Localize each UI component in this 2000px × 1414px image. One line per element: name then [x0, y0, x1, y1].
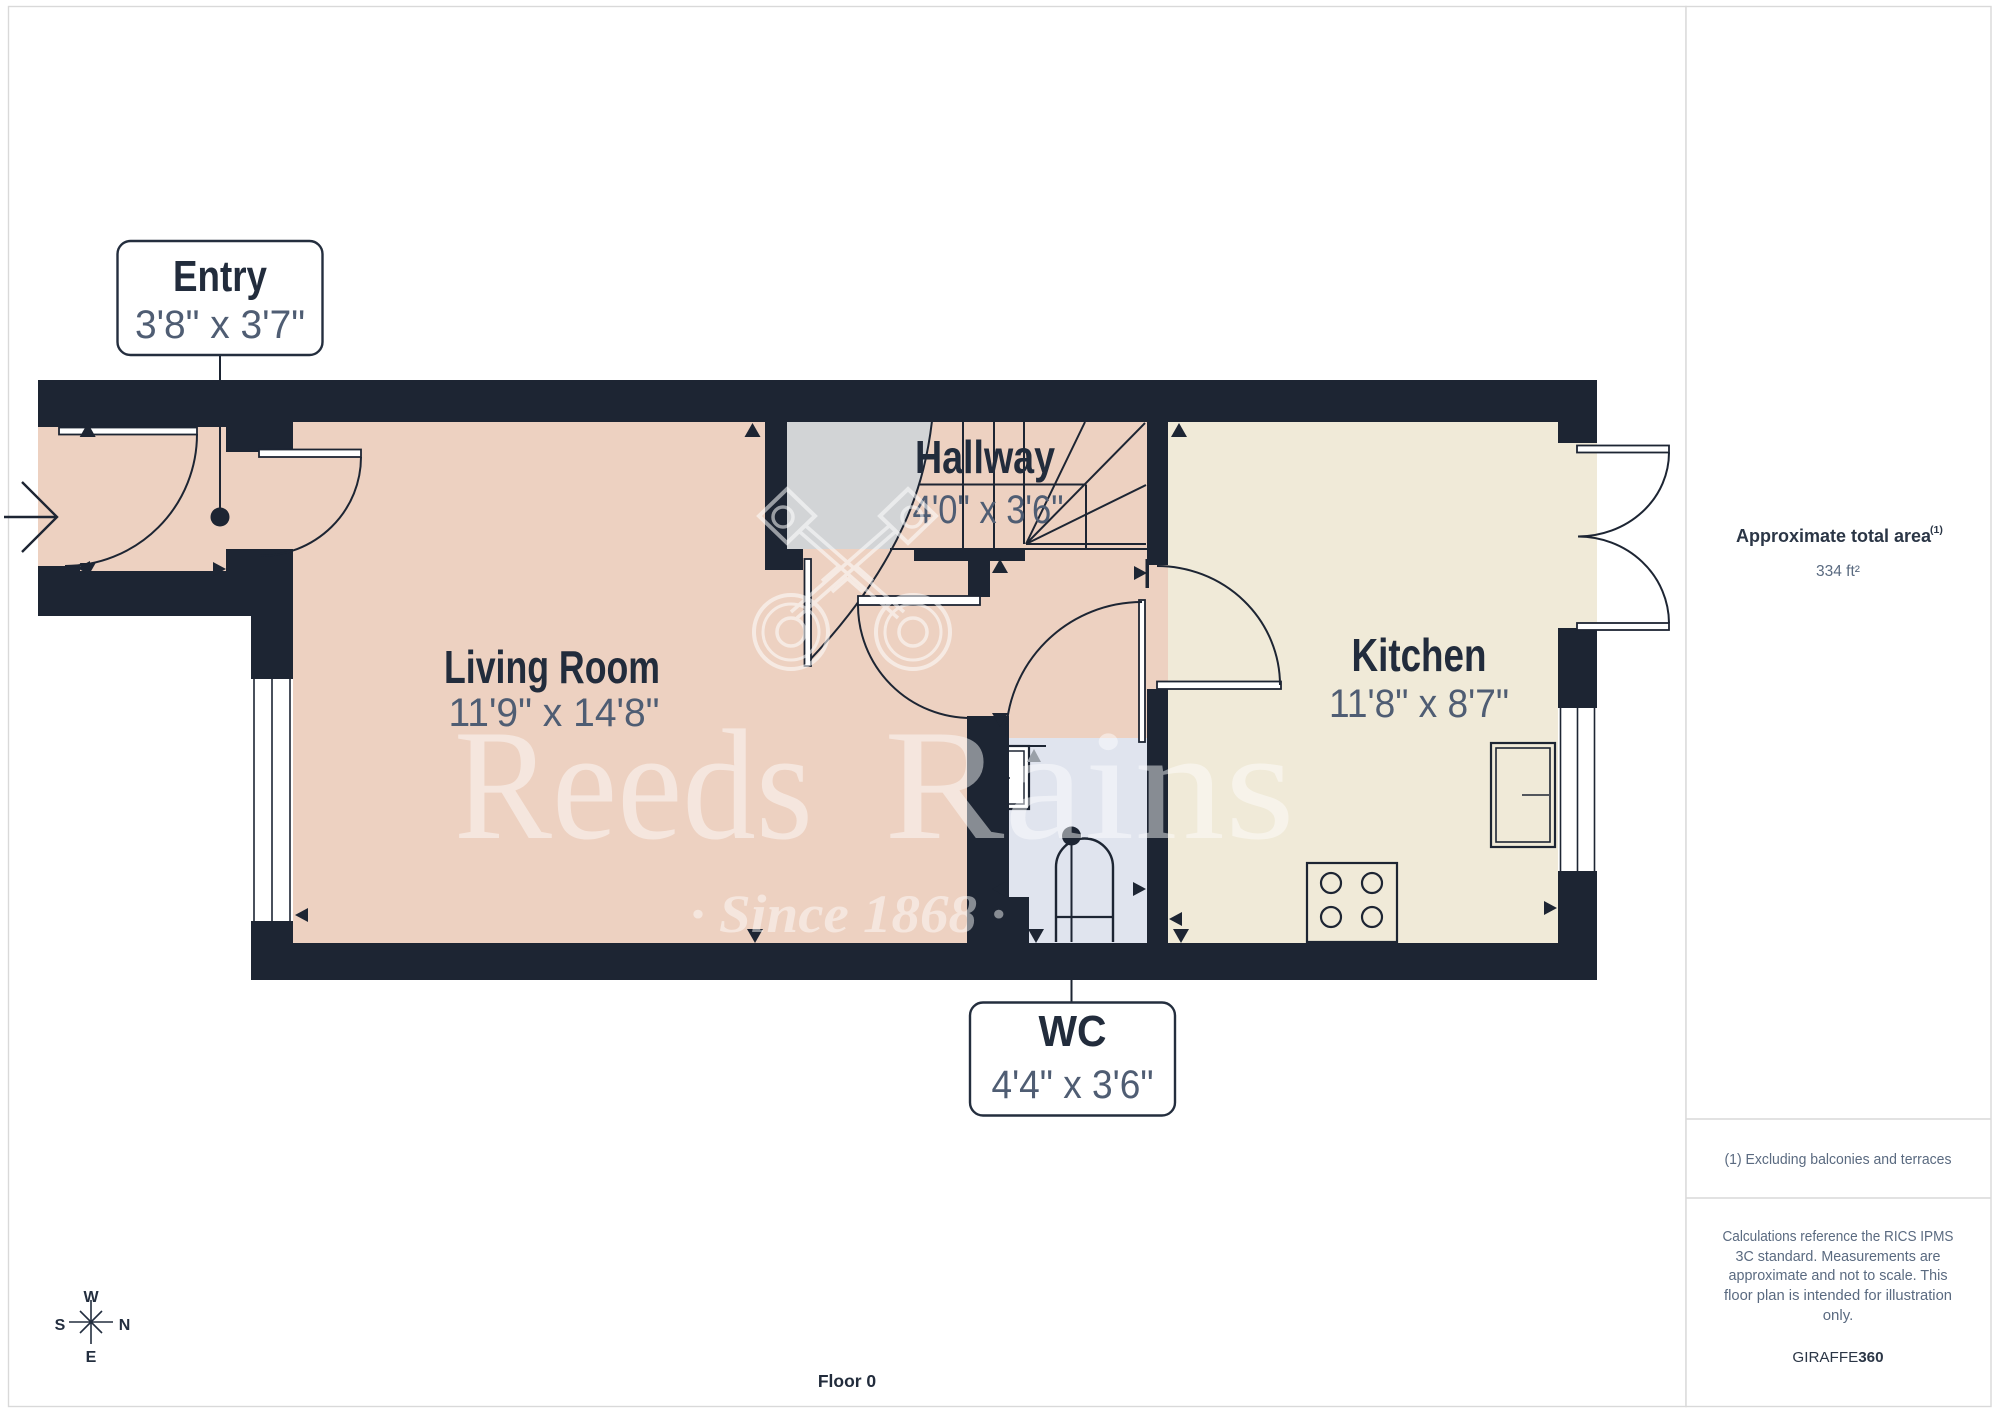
svg-text:WC: WC: [1039, 1007, 1107, 1056]
svg-text:floor plan is intended for ill: floor plan is intended for illustration: [1724, 1287, 1952, 1304]
svg-text:S: S: [55, 1317, 66, 1334]
svg-text:4'0" x 3'6": 4'0" x 3'6": [913, 488, 1064, 532]
svg-text:4'4" x 3'6": 4'4" x 3'6": [992, 1063, 1154, 1107]
svg-text:3C standard. Measurements are: 3C standard. Measurements are: [1736, 1248, 1941, 1265]
svg-text:Kitchen: Kitchen: [1352, 629, 1487, 681]
svg-text:334 ft²: 334 ft²: [1816, 563, 1860, 580]
svg-text:GIRAFFE360: GIRAFFE360: [1792, 1349, 1883, 1366]
svg-text:3'8" x 3'7": 3'8" x 3'7": [135, 303, 305, 347]
svg-text:only.: only.: [1823, 1307, 1854, 1324]
svg-text:E: E: [86, 1349, 97, 1366]
svg-text:approximate and not to scale.: approximate and not to scale. This: [1729, 1267, 1948, 1284]
svg-text:(1) Excluding balconies and te: (1) Excluding balconies and terraces: [1725, 1151, 1952, 1168]
svg-text:· Since 1868 ·: · Since 1868 ·: [691, 884, 1006, 944]
svg-text:Hallway: Hallway: [915, 431, 1055, 483]
svg-text:Approximate total area: Approximate total area: [1736, 526, 1932, 546]
svg-text:Reeds: Reeds: [454, 698, 813, 873]
svg-text:Calculations reference the RIC: Calculations reference the RICS IPMS: [1723, 1228, 1954, 1245]
svg-text:Rains: Rains: [884, 698, 1295, 873]
svg-text:11'8" x 8'7": 11'8" x 8'7": [1329, 682, 1509, 726]
svg-text:N: N: [119, 1317, 131, 1334]
svg-text:Entry: Entry: [173, 252, 267, 301]
svg-text:Floor 0: Floor 0: [818, 1371, 877, 1391]
svg-text:W: W: [83, 1289, 99, 1306]
svg-text:(1): (1): [1930, 524, 1943, 536]
svg-text:Living Room: Living Room: [444, 641, 660, 693]
